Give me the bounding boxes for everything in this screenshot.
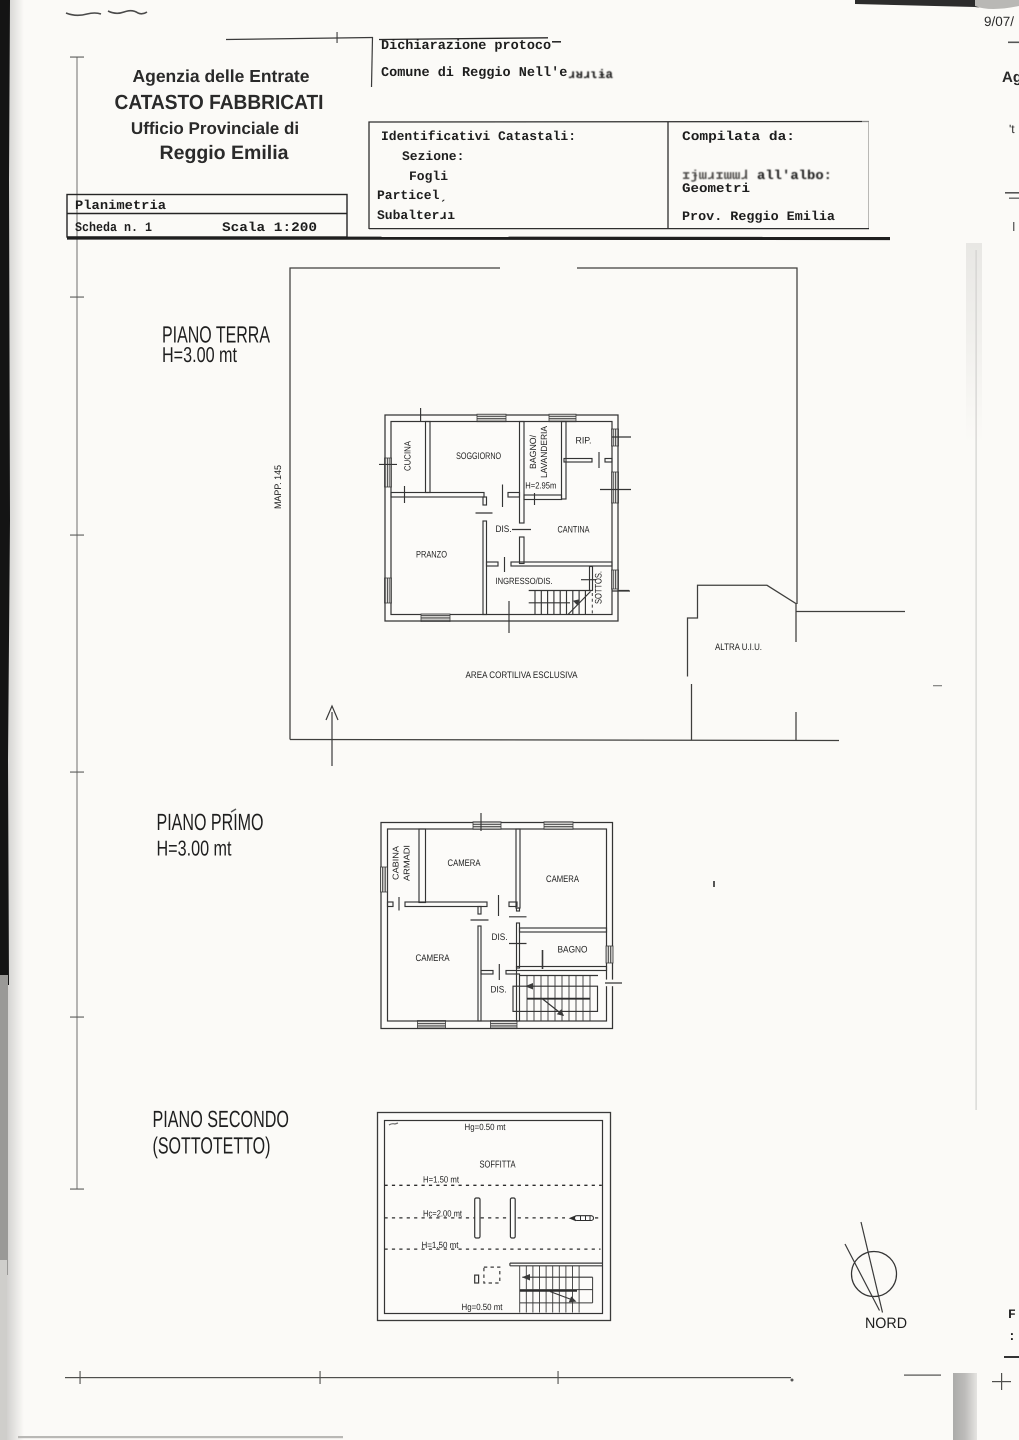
- svg-text:ALTRA U.I.U.: ALTRA U.I.U.: [715, 642, 762, 653]
- svg-text:CAMERA: CAMERA: [448, 858, 482, 869]
- svg-text:Hc=2.00 mt: Hc=2.00 mt: [423, 1209, 462, 1219]
- svg-text:LAVANDERIA: LAVANDERIA: [539, 426, 549, 478]
- svg-text:Hg=0.50 mt: Hg=0.50 mt: [465, 1122, 506, 1132]
- svg-text:CATASTO FABBRICATI: CATASTO FABBRICATI: [115, 91, 324, 114]
- svg-text:Ag: Ag: [1002, 69, 1019, 86]
- svg-text:Fogli: Fogli: [409, 169, 448, 184]
- svg-text:(SOTTOTETTO): (SOTTOTETTO): [153, 1133, 271, 1159]
- svg-text:Agenzia delle Entrate: Agenzia delle Entrate: [133, 66, 310, 86]
- svg-text:Particelˏ: Particelˏ: [377, 188, 447, 203]
- svg-text:Ufficio Provinciale di: Ufficio Provinciale di: [131, 119, 299, 138]
- svg-text:DIS.: DIS.: [492, 932, 508, 943]
- svg-text:BAGNO: BAGNO: [558, 945, 588, 956]
- svg-text:AREA CORTILIVA ESCLUSIVA: AREA CORTILIVA ESCLUSIVA: [466, 670, 579, 681]
- svg-text:Dichiarazione protoco: Dichiarazione protoco: [381, 39, 551, 54]
- svg-text:INGRESSO/DIS.: INGRESSO/DIS.: [496, 576, 553, 586]
- svg-text:PRANZO: PRANZO: [416, 550, 447, 561]
- svg-text:BAGNO/: BAGNO/: [528, 435, 538, 469]
- svg-text:Subalterɹı: Subalterɹı: [377, 208, 455, 223]
- svg-text:RIP.: RIP.: [576, 436, 592, 447]
- svg-text:ARMADI: ARMADI: [402, 845, 412, 881]
- svg-text:NORD: NORD: [865, 1315, 907, 1332]
- svg-text:PIANO SECONDO: PIANO SECONDO: [153, 1106, 290, 1132]
- svg-text:MAPP. 145: MAPP. 145: [273, 465, 284, 509]
- svg-text:CAMERA: CAMERA: [546, 874, 580, 885]
- svg-text::: :: [1008, 1329, 1016, 1344]
- svg-text:H=3.00 mt: H=3.00 mt: [157, 837, 232, 861]
- svg-text:SOGGIORNO: SOGGIORNO: [456, 451, 501, 462]
- svg-text:Sezione:: Sezione:: [402, 149, 464, 164]
- svg-text:DIS.: DIS.: [491, 985, 507, 996]
- svg-text:Comune di Reggio Nell'e: Comune di Reggio Nell'e: [381, 66, 567, 81]
- svg-text:SOFFITTA: SOFFITTA: [480, 1160, 516, 1171]
- svg-text:ɹʁɹɩɨa: ɹʁɹɩɨa: [568, 68, 614, 82]
- svg-text:Identificativi Catastali:: Identificativi Catastali:: [381, 129, 576, 144]
- svg-text:H=1.50 mt: H=1.50 mt: [423, 1175, 459, 1185]
- svg-text:CANTINA: CANTINA: [558, 525, 591, 536]
- svg-text:H=3.00 mt: H=3.00 mt: [162, 343, 237, 367]
- svg-text:CAMERA: CAMERA: [416, 953, 451, 964]
- svg-text:SOTTOS.: SOTTOS.: [594, 571, 605, 604]
- svg-text:CUCINA: CUCINA: [403, 441, 413, 471]
- svg-text:Scala 1:200: Scala 1:200: [222, 220, 317, 235]
- svg-text:Geometri: Geometri: [682, 181, 750, 196]
- svg-text:Prov. Reggio Emilia: Prov. Reggio Emilia: [682, 209, 835, 224]
- svg-text:Hg=0.50 mt: Hg=0.50 mt: [462, 1302, 503, 1312]
- svg-text:F: F: [1008, 1307, 1016, 1322]
- svg-text:CABINA: CABINA: [391, 846, 401, 880]
- svg-text:Reggio Emilia: Reggio Emilia: [160, 142, 289, 164]
- svg-text:9/07/: 9/07/: [984, 14, 1014, 29]
- svg-text:DIS.: DIS.: [496, 524, 512, 535]
- svg-text:PIANO PRIMO: PIANO PRIMO: [157, 809, 264, 835]
- svg-text:H=2.95m: H=2.95m: [525, 481, 556, 491]
- svg-text:Scheda n. 1: Scheda n. 1: [75, 220, 152, 235]
- svg-text:Compіlata da:: Compіlata da:: [682, 129, 795, 144]
- svg-text:'t: 't: [1009, 122, 1015, 136]
- svg-text:Planimetria: Planimetria: [75, 198, 166, 213]
